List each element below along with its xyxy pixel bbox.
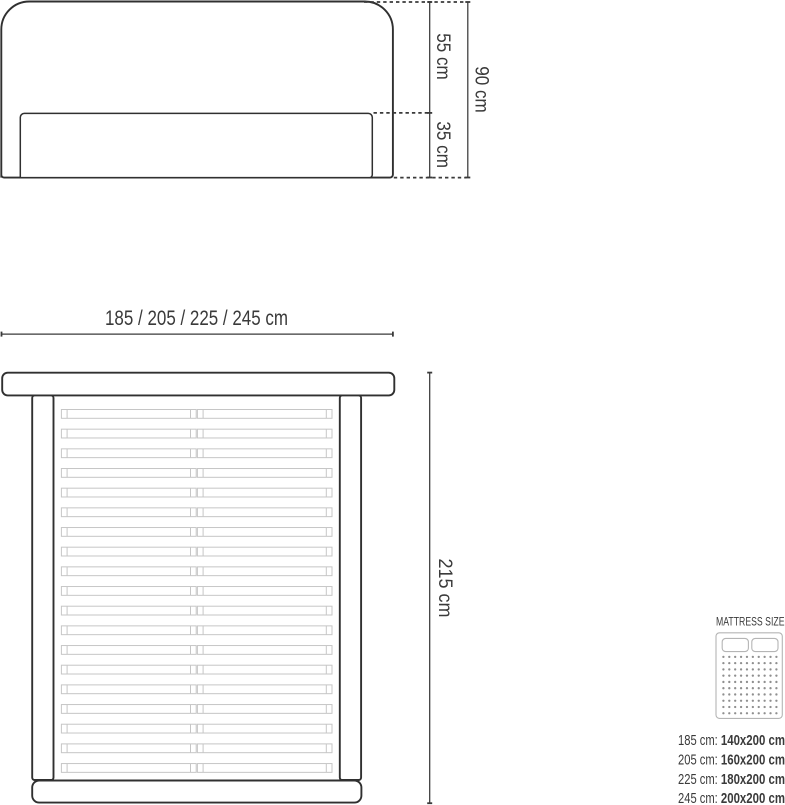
svg-text:35 cm: 35 cm [432,121,454,168]
svg-text:185 / 205 / 225 / 245 cm: 185 / 205 / 225 / 245 cm [105,307,288,330]
svg-text:225 cm:: 225 cm: [678,772,721,788]
svg-text:140x200 cm: 140x200 cm [721,733,785,749]
svg-text:MATTRESS SIZE: MATTRESS SIZE [716,614,785,628]
svg-text:90 cm: 90 cm [471,66,493,113]
svg-text:200x200 cm: 200x200 cm [721,791,785,805]
svg-text:185 cm:: 185 cm: [678,733,721,749]
svg-text:215 cm: 215 cm [434,559,456,618]
svg-text:55 cm: 55 cm [432,33,454,80]
svg-text:205 cm:: 205 cm: [678,752,721,768]
svg-text:160x200 cm: 160x200 cm [721,752,785,768]
svg-text:180x200 cm: 180x200 cm [721,772,785,788]
svg-text:245 cm:: 245 cm: [678,791,721,805]
